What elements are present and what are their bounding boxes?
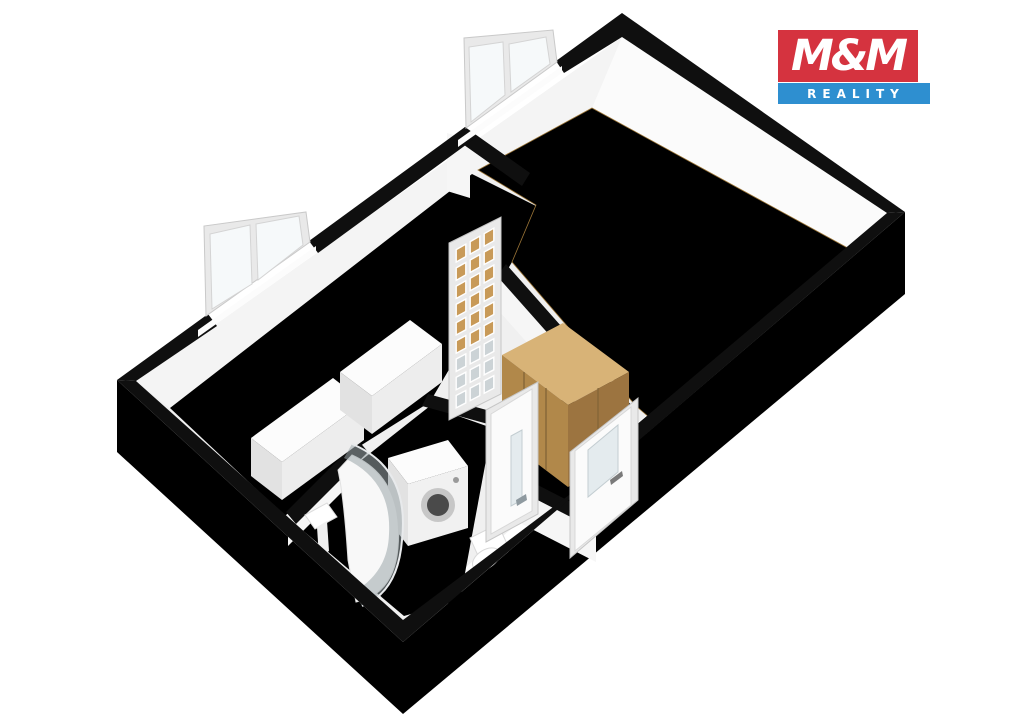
floorplan-canvas [0,0,1024,724]
logo-reality-text: REALITY [807,87,905,101]
washing-machine-knob [453,477,459,483]
logo-mm-box: M&M [778,30,918,82]
mm-reality-logo: M&M REALITY [778,30,938,104]
floorplan-page: M&M REALITY [0,0,1024,724]
logo-mm-text: M&M [791,31,905,81]
logo-reality-bar: REALITY [778,83,930,104]
bathroom-door-pane [511,430,522,506]
washing-machine-drum [427,494,449,516]
